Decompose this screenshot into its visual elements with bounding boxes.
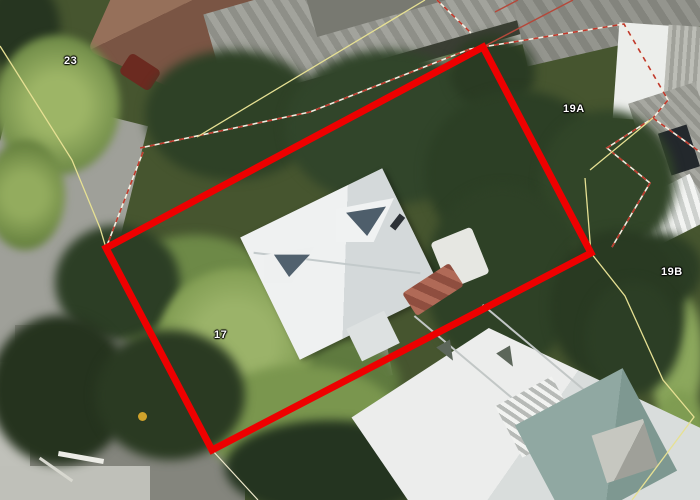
parcel-boundary-line — [197, 0, 425, 137]
parcel-boundary-line — [590, 118, 653, 170]
survey-dashed-line — [653, 118, 700, 152]
parcel-label-23: 23 — [64, 55, 77, 67]
selected-parcel-outline — [106, 47, 591, 450]
survey-line — [495, 0, 518, 12]
parcel-boundary-line — [0, 46, 106, 248]
parcel-boundary-line — [585, 178, 694, 500]
parcel-label-19a: 19A — [563, 103, 585, 115]
cadastral-overlay — [0, 0, 700, 500]
parcel-label-17: 17 — [214, 329, 227, 341]
parcel-label-19b: 19B — [661, 266, 683, 278]
aerial-map-view[interactable]: 23 19A 19B 17 — [0, 0, 700, 500]
parcel-boundary-line — [212, 450, 258, 500]
